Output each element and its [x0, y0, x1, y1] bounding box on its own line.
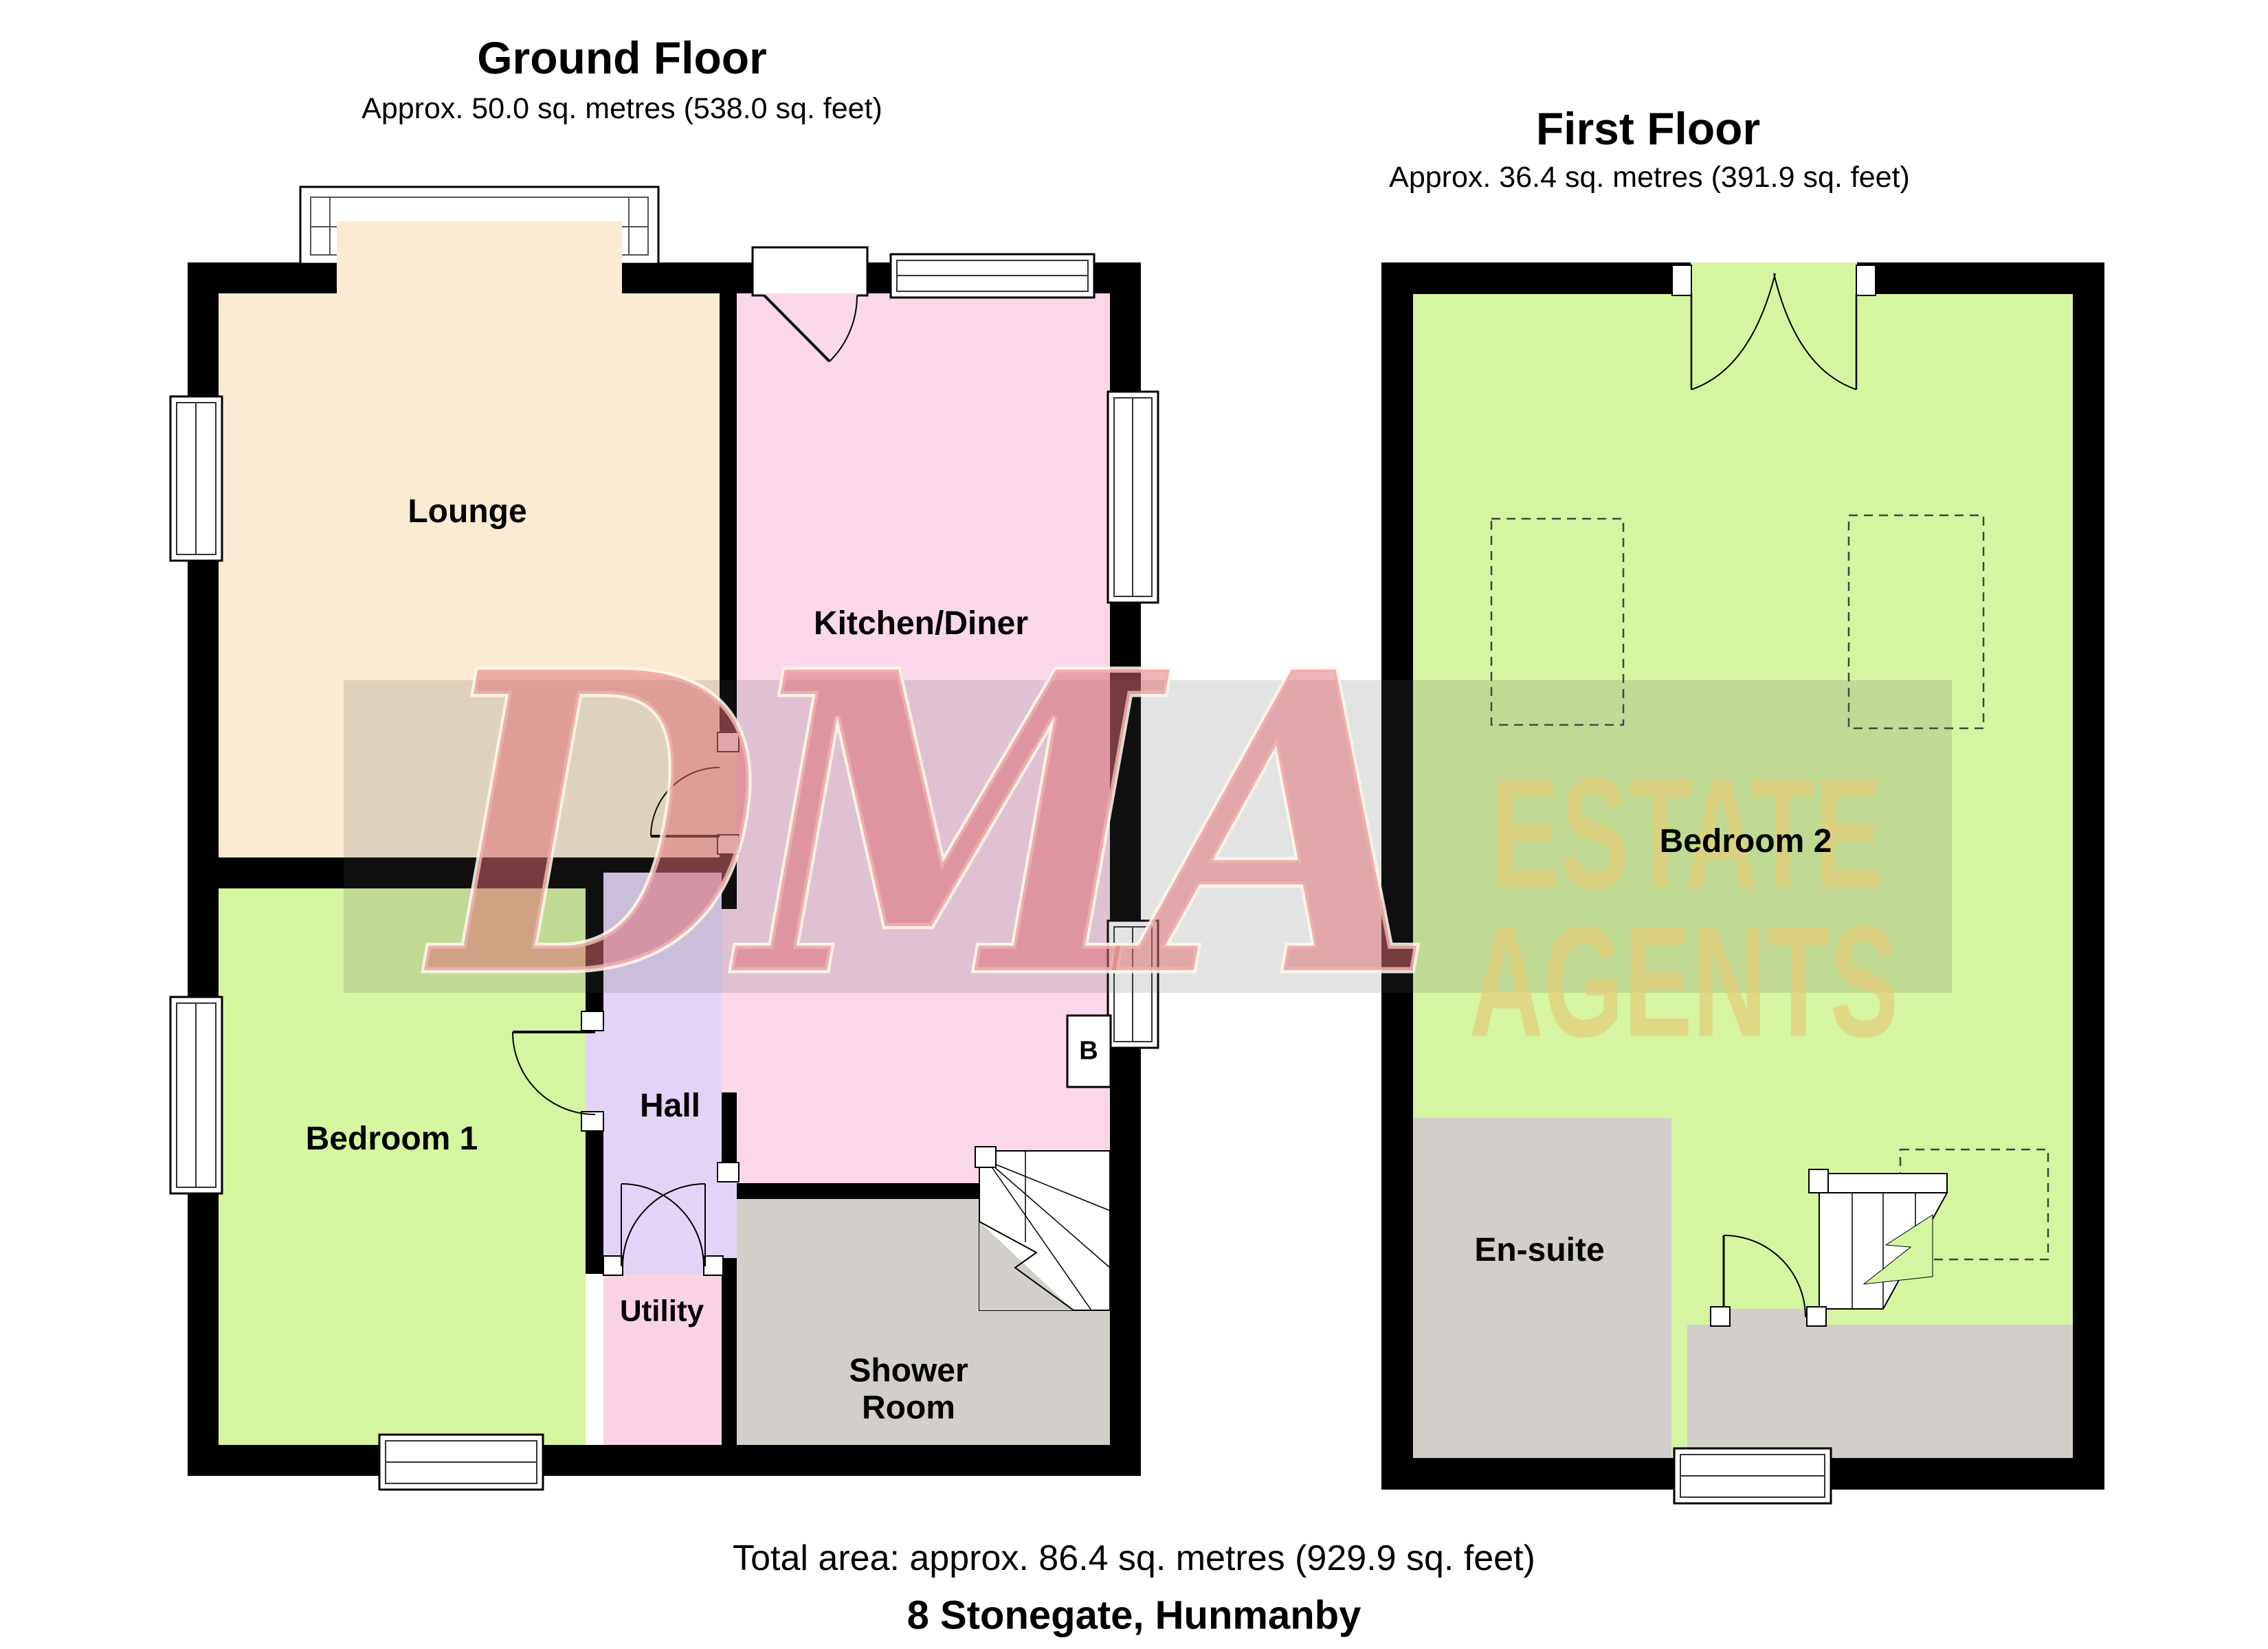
window-first-floor-bottom — [1674, 1448, 1831, 1503]
label-bedroom2: Bedroom 2 — [1660, 823, 1832, 860]
label-ensuite: En-suite — [1474, 1232, 1604, 1269]
label-hall: Hall — [640, 1088, 700, 1125]
window-kitchen-right-upper — [1108, 392, 1158, 603]
watermark-word2: AGENTS — [1469, 893, 1899, 1070]
ground-floor-title: Ground Floor — [477, 33, 767, 84]
gf-wall-kitchen-3 — [720, 1092, 737, 1164]
room-ensuite-floor — [1413, 1118, 1671, 1458]
room-kitchen-floor-lower — [737, 1151, 979, 1183]
label-boiler: B — [1079, 1037, 1098, 1066]
gf-wall-bottom — [188, 1445, 1141, 1476]
footer-total-area: Total area: approx. 86.4 sq. metres (929… — [733, 1538, 1535, 1578]
window-bedroom1-bottom — [379, 1435, 543, 1490]
footer-address: 8 Stonegate, Hunmanby — [907, 1594, 1361, 1639]
ff-wall-right — [2073, 262, 2104, 1490]
window-lounge-left — [170, 396, 222, 561]
label-kitchen-diner: Kitchen/Diner — [814, 605, 1028, 642]
label-shower-room: Shower Room — [849, 1352, 968, 1426]
gf-wall-shower-top — [737, 1183, 979, 1199]
first-floor-title: First Floor — [1536, 104, 1760, 155]
ground-floor-area: Approx. 50.0 sq. metres (538.0 sq. feet) — [362, 92, 882, 125]
watermark-brand: DMA — [421, 583, 1419, 1068]
label-shower-line2: Room — [862, 1389, 955, 1426]
label-bedroom1: Bedroom 1 — [306, 1121, 478, 1158]
first-floor-area: Approx. 36.4 sq. metres (391.9 sq. feet) — [1389, 161, 1910, 194]
floorplan-drawing: DMA ESTATE AGENTS — [0, 0, 2268, 1649]
label-shower-line1: Shower — [849, 1352, 968, 1389]
room-ensuite-strip-floor — [1687, 1325, 2073, 1458]
gf-wall-kitchen-4 — [720, 1258, 737, 1445]
bay-window — [300, 187, 658, 293]
label-lounge: Lounge — [408, 493, 526, 530]
window-kitchen-top — [891, 254, 1094, 298]
stairs-ground-floor — [975, 1147, 1110, 1310]
window-bedroom1-left — [170, 997, 222, 1193]
label-utility: Utility — [620, 1294, 704, 1327]
